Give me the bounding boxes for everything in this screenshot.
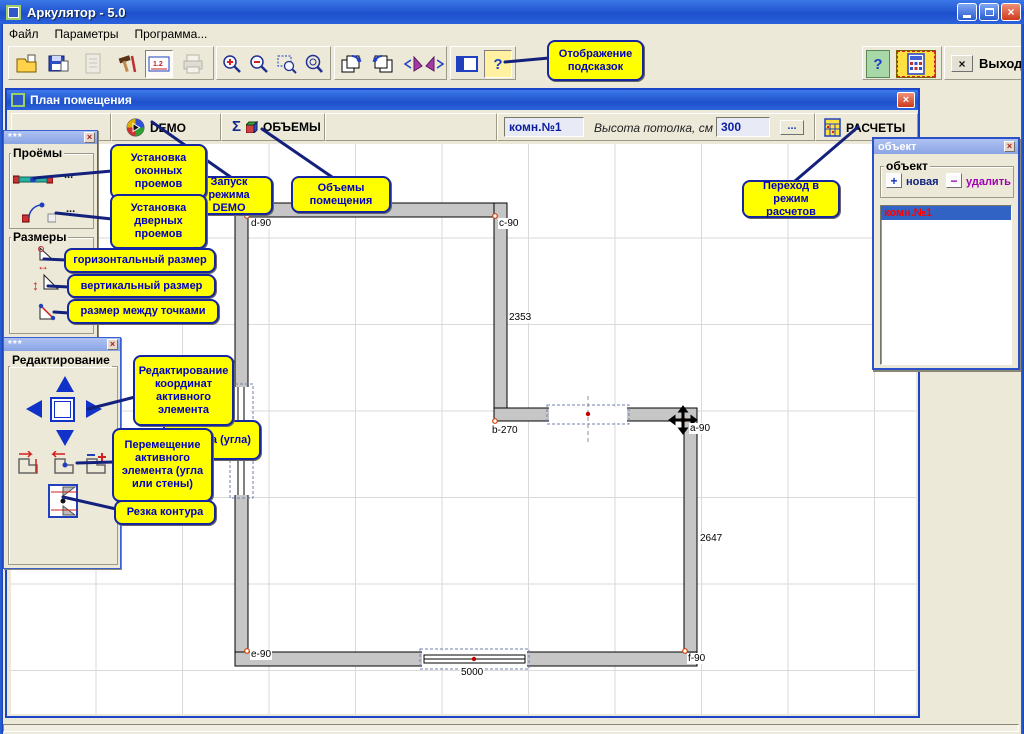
- object-panel-title: объект: [878, 141, 916, 153]
- delete-object-icon: −: [946, 173, 962, 188]
- demo-play-icon: [126, 118, 145, 137]
- panels-icon: [455, 54, 479, 74]
- tooltip-cut-contour: Резка контура: [114, 500, 216, 525]
- move-down-button[interactable]: [56, 430, 74, 446]
- plan-toolbar-spacer-2: [325, 113, 497, 141]
- more-options-button[interactable]: ...: [780, 120, 804, 135]
- rotate-cw-icon: [339, 52, 363, 76]
- openings-group-label: Проёмы: [11, 146, 64, 160]
- wall-right-upper: [494, 203, 507, 421]
- mirror-right-icon: [402, 53, 424, 75]
- corner-label-d: d-90: [250, 218, 272, 229]
- toolbar-section-zoom: [216, 46, 331, 80]
- menu-file[interactable]: Файл: [2, 25, 46, 43]
- volumes-button[interactable]: Σ ОБЪЕМЫ: [232, 118, 321, 135]
- corner-tool-2-icon: [48, 451, 78, 477]
- cut-contour-button[interactable]: [46, 482, 82, 525]
- volumes-section: Σ ОБЪЕМЫ: [221, 113, 325, 141]
- new-object-button[interactable]: новая: [906, 176, 939, 188]
- exit-x-icon: ×: [951, 55, 973, 72]
- svg-text:↕: ↕: [32, 277, 39, 293]
- demo-section: DEMO: [111, 113, 221, 141]
- question-icon: ?: [493, 56, 502, 73]
- dim-label-2353: 2353: [508, 312, 532, 323]
- window-opening-bottom[interactable]: [420, 649, 529, 669]
- mirror-left-icon: [424, 53, 446, 75]
- close-button[interactable]: ×: [1001, 3, 1021, 21]
- settings-tools-button[interactable]: [113, 50, 141, 78]
- rotate-cw-button[interactable]: [337, 50, 365, 78]
- toolbar-section-exit: × Выход: [944, 46, 1022, 80]
- exit-button[interactable]: Выход: [979, 56, 1022, 71]
- move-right-button[interactable]: [86, 400, 102, 418]
- window-title: Аркулятор - 5.0: [27, 5, 125, 20]
- door-opening-more: ...: [66, 203, 75, 215]
- calc-grid-icon: [824, 118, 841, 137]
- corner-c[interactable]: [493, 214, 498, 219]
- edit-coordinates-button[interactable]: [50, 397, 75, 422]
- mirror-right-button[interactable]: [401, 50, 425, 78]
- menu-program[interactable]: Программа...: [127, 25, 214, 43]
- save-floppy-icon: [47, 52, 71, 76]
- menu-parameters[interactable]: Параметры: [48, 25, 126, 43]
- tooltip-calc-mode: Переход в режим расчетов: [742, 180, 840, 218]
- hammer-tools-icon: [115, 52, 139, 76]
- editing-panel-titlebar[interactable]: *** ×: [4, 338, 120, 351]
- window-opening-icon: [13, 171, 53, 187]
- rotate-ccw-icon: [371, 52, 395, 76]
- zoom-in-icon: [221, 53, 243, 75]
- room-name-field[interactable]: комн.№1: [504, 117, 584, 137]
- statusbar: [0, 722, 1024, 734]
- dimension-icon: 1.2: [147, 53, 171, 75]
- zoom-region-icon: [276, 53, 298, 75]
- restore-icon: [985, 8, 994, 16]
- menubar: Файл Параметры Программа...: [0, 24, 1024, 44]
- dim-label-5000: 5000: [460, 667, 484, 678]
- room-section: комн.№1 Высота потолка, см - 300 ...: [497, 113, 815, 141]
- help-button[interactable]: ?: [866, 50, 890, 78]
- ceiling-height-field[interactable]: 300: [716, 117, 770, 137]
- open-button[interactable]: [13, 50, 41, 78]
- openings-panel-title: ***: [8, 132, 23, 143]
- tooltip-hints: Отображение подсказок: [547, 40, 644, 81]
- add-object-icon: +: [886, 173, 902, 188]
- door-opening-tool-button[interactable]: [22, 201, 56, 228]
- tooltip-vertical-dim: вертикальный размер: [67, 274, 216, 298]
- window-opening-more: ...: [64, 169, 73, 181]
- openings-panel-close-button[interactable]: ×: [84, 132, 95, 143]
- delete-object-button[interactable]: удалить: [966, 176, 1011, 188]
- cube-icon: [246, 121, 258, 133]
- toolbar-section-file: 1.2: [8, 46, 214, 80]
- cut-contour-icon: [46, 482, 82, 520]
- plan-toolbar: DEMO Σ ОБЪЕМЫ комн.№1 Высота потолка, см…: [9, 112, 916, 142]
- move-up-button[interactable]: [56, 376, 74, 392]
- volumes-label: ОБЪЕМЫ: [263, 120, 321, 134]
- rotate-ccw-button[interactable]: [369, 50, 397, 78]
- app-icon: [6, 5, 21, 20]
- object-group-label: объект: [884, 159, 930, 173]
- tooltip-horizontal-dim: горизонтальный размер: [64, 248, 216, 273]
- tooltip-point-dim: размер между точками: [67, 299, 219, 324]
- minimize-button[interactable]: [957, 3, 977, 21]
- corner-tool-1-icon: [14, 451, 44, 477]
- object-list-item[interactable]: комн.№1: [881, 206, 1011, 220]
- toolbar-section-view: ?: [450, 46, 516, 80]
- zoom-in-button[interactable]: [219, 50, 245, 78]
- zoom-out-icon: [248, 53, 270, 75]
- tooltip-edit-coordinates: Редактирование координат активного элеме…: [133, 355, 234, 426]
- report-button[interactable]: [79, 50, 107, 78]
- plan-window-title: План помещения: [30, 93, 132, 107]
- calculations-label: РАСЧЕТЫ: [846, 121, 905, 135]
- main-toolbar: 1.2: [0, 44, 1024, 82]
- demo-button[interactable]: DEMO: [126, 118, 186, 137]
- demo-label: DEMO: [150, 121, 186, 135]
- corner-e[interactable]: [245, 649, 250, 654]
- corner-label-a: a-90: [689, 423, 711, 434]
- panels-toggle-button[interactable]: [453, 50, 481, 78]
- corner-tool-2-button[interactable]: [48, 451, 78, 482]
- mirror-left-button[interactable]: [423, 50, 447, 78]
- svg-text:1.2: 1.2: [153, 61, 163, 68]
- vertical-dim-button[interactable]: ↕: [32, 271, 60, 302]
- printer-icon: [181, 52, 205, 76]
- corner-tool-3-icon: [82, 451, 112, 477]
- open-folder-icon: [15, 52, 39, 76]
- point-dim-icon: [34, 299, 62, 327]
- close-icon: ×: [1007, 5, 1014, 19]
- save-button[interactable]: [45, 50, 73, 78]
- tooltip-door-openings: Установка дверных проемов: [110, 194, 207, 249]
- help-icon: ?: [873, 56, 882, 73]
- wall-right-lower: [684, 420, 697, 652]
- tooltip-move-element: Перемещение активного элемента (угла или…: [112, 428, 213, 502]
- editing-panel: *** × Редактирование: [3, 337, 121, 569]
- restore-button[interactable]: [979, 3, 999, 21]
- svg-text:↔: ↔: [37, 259, 49, 271]
- ceiling-height-label: Высота потолка, см -: [594, 121, 720, 135]
- calculator-mode-button[interactable]: [896, 50, 936, 78]
- window-frame-left: [0, 0, 3, 734]
- calculations-button[interactable]: РАСЧЕТЫ: [824, 118, 905, 137]
- zoom-full-icon: [303, 53, 325, 75]
- vertical-dim-icon: ↕: [32, 271, 60, 297]
- window-opening-tool-button[interactable]: [13, 171, 53, 192]
- corner-tool-3-button[interactable]: [82, 451, 112, 482]
- minimize-icon: [963, 15, 971, 18]
- object-list[interactable]: комн.№1: [880, 205, 1012, 365]
- sizes-group-label: Размеры: [11, 230, 68, 244]
- statusbar-field: [3, 724, 1019, 732]
- horizontal-dim-icon: ↔: [32, 245, 60, 271]
- dim-label-2647: 2647: [699, 533, 723, 544]
- zoom-region-button[interactable]: [274, 50, 300, 78]
- corner-label-e: e-90: [250, 649, 272, 660]
- print-button[interactable]: [179, 50, 207, 78]
- editing-panel-title: ***: [8, 339, 23, 350]
- zoom-full-button[interactable]: [301, 50, 327, 78]
- hints-toggle-button[interactable]: ?: [484, 50, 512, 78]
- toolbar-section-rotate: [334, 46, 447, 80]
- corner-label-b: b-270: [491, 425, 519, 436]
- window-opening-middle[interactable]: [547, 396, 629, 442]
- corner-b[interactable]: [493, 419, 498, 424]
- object-panel: объект × объект + новая − удалить комн.№…: [872, 137, 1020, 370]
- door-opening-icon: [22, 201, 56, 223]
- tooltip-window-openings: Установка оконных проемов: [110, 144, 207, 199]
- plan-window-titlebar[interactable]: План помещения ×: [7, 90, 918, 110]
- calculator-icon: [905, 52, 927, 76]
- corner-label-c: c-90: [498, 218, 519, 229]
- plan-window-icon: [11, 93, 25, 107]
- dimensions-mode-button[interactable]: 1.2: [145, 50, 173, 78]
- corner-label-f: f-90: [687, 653, 706, 664]
- point-dim-button[interactable]: [34, 299, 62, 332]
- plan-window-close-button[interactable]: ×: [897, 92, 915, 108]
- move-left-button[interactable]: [26, 400, 42, 418]
- tooltip-room-volumes: Объемы помещения: [291, 176, 391, 213]
- editing-panel-close-button[interactable]: ×: [107, 339, 118, 350]
- titlebar: Аркулятор - 5.0 ×: [0, 0, 1024, 24]
- close-icon: ×: [903, 94, 909, 106]
- document-icon: [82, 52, 104, 76]
- zoom-out-button[interactable]: [246, 50, 272, 78]
- object-panel-close-button[interactable]: ×: [1004, 141, 1015, 152]
- sigma-icon: Σ: [232, 118, 241, 135]
- corner-tool-1-button[interactable]: [14, 451, 44, 482]
- openings-panel-titlebar[interactable]: *** ×: [4, 131, 97, 144]
- toolbar-section-help: ?: [862, 46, 942, 80]
- object-panel-titlebar[interactable]: объект ×: [874, 139, 1018, 154]
- editing-group-label: Редактирование: [10, 353, 112, 367]
